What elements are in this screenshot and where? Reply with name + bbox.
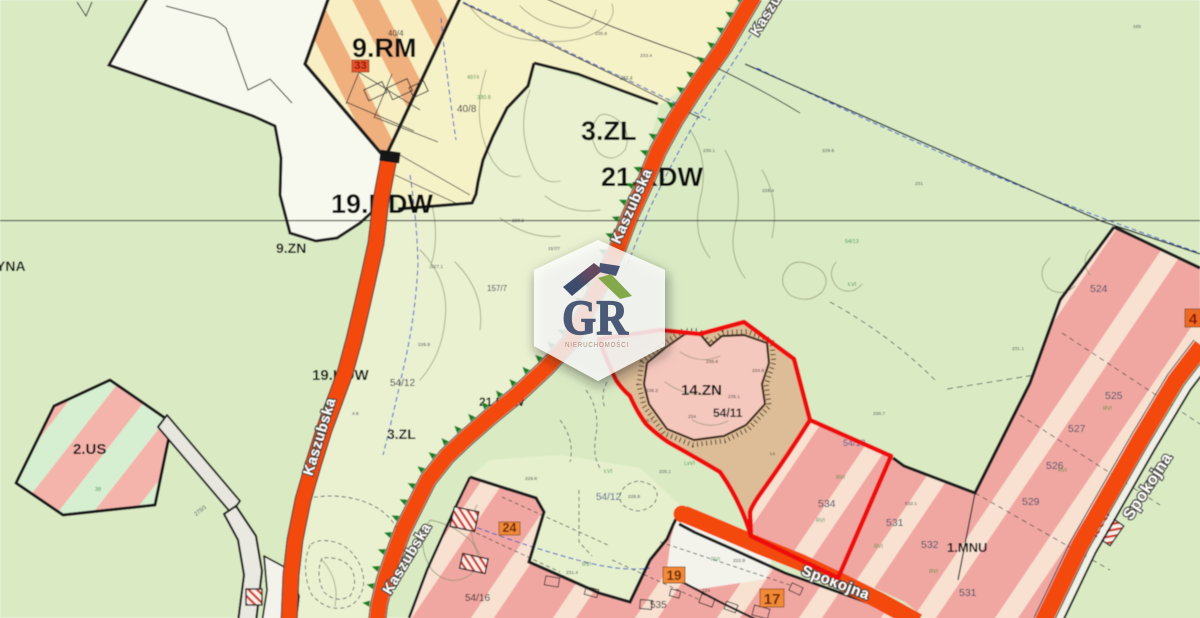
svg-text:157/7: 157/7	[548, 246, 560, 252]
svg-text:229.6: 229.6	[525, 476, 537, 482]
svg-text:228.8: 228.8	[628, 494, 640, 500]
svg-text:235.1: 235.1	[728, 394, 740, 400]
svg-text:222.9: 222.9	[733, 558, 745, 564]
svg-text:531: 531	[959, 587, 977, 599]
svg-text:165: 165	[1133, 24, 1141, 30]
svg-text:54/11: 54/11	[713, 406, 743, 420]
svg-text:527: 527	[1068, 423, 1086, 435]
svg-text:54/16: 54/16	[465, 593, 490, 604]
svg-text:24: 24	[503, 521, 517, 535]
svg-text:19: 19	[666, 568, 681, 583]
svg-text:157/7: 157/7	[487, 284, 508, 293]
svg-text:RVI: RVI	[836, 475, 846, 481]
svg-text:3.ZL: 3.ZL	[387, 426, 416, 442]
svg-text:229.8: 229.8	[822, 148, 834, 154]
svg-text:231.4: 231.4	[566, 570, 578, 576]
svg-text:33: 33	[354, 60, 366, 72]
svg-text:40/4: 40/4	[388, 29, 404, 38]
svg-text:226.8: 226.8	[418, 342, 430, 348]
svg-text:525: 525	[1105, 390, 1123, 402]
svg-text:9.ZN: 9.ZN	[276, 240, 306, 256]
svg-text:236.6: 236.6	[706, 359, 718, 365]
svg-text:40/8: 40/8	[457, 104, 477, 115]
svg-text:233.4: 233.4	[620, 76, 633, 82]
svg-text:YNA: YNA	[0, 258, 26, 274]
svg-text:RVI: RVI	[874, 544, 884, 550]
svg-text:14.ZN: 14.ZN	[681, 382, 722, 399]
svg-text:228.2: 228.2	[512, 218, 524, 224]
svg-text:235.6: 235.6	[595, 31, 607, 37]
svg-text:225.1: 225.1	[659, 469, 671, 475]
svg-text:4.8: 4.8	[352, 411, 359, 417]
svg-text:ŁVI: ŁVI	[604, 469, 613, 475]
svg-text:RVI: RVI	[582, 562, 592, 568]
svg-text:54/12: 54/12	[596, 492, 621, 503]
svg-text:228.4: 228.4	[762, 188, 774, 194]
svg-text:RVI: RVI	[711, 557, 721, 563]
svg-text:RVI: RVI	[929, 569, 939, 575]
svg-text:231: 231	[915, 181, 923, 187]
svg-text:231.1: 231.1	[1012, 346, 1024, 352]
svg-text:532: 532	[921, 539, 939, 551]
svg-text:ŁVI: ŁVI	[848, 282, 857, 288]
svg-text:RVI: RVI	[1058, 468, 1068, 474]
svg-text:532.1: 532.1	[905, 501, 917, 507]
svg-text:NIERUCHOMOŚCI: NIERUCHOMOŚCI	[565, 340, 629, 349]
svg-text:3.ZL: 3.ZL	[581, 116, 637, 146]
svg-text:4974: 4974	[467, 75, 479, 81]
svg-text:230.1: 230.1	[703, 148, 715, 154]
svg-text:9.RM: 9.RM	[352, 33, 417, 63]
svg-text:531: 531	[886, 517, 904, 529]
svg-text:224: 224	[702, 588, 710, 594]
svg-text:236.2: 236.2	[646, 388, 658, 394]
svg-text:233.4: 233.4	[640, 53, 652, 59]
svg-text:534: 534	[818, 498, 836, 510]
svg-text:529: 529	[1022, 496, 1040, 508]
svg-text:234: 234	[688, 414, 696, 420]
svg-text:LsVI: LsVI	[684, 461, 695, 467]
svg-text:535: 535	[650, 600, 667, 611]
svg-text:230.7: 230.7	[873, 411, 885, 417]
svg-text:330.8: 330.8	[477, 95, 491, 101]
svg-text:227.1: 227.1	[431, 264, 443, 270]
svg-text:4: 4	[1189, 311, 1198, 328]
svg-text:2.US: 2.US	[73, 441, 106, 458]
svg-text:234.8: 234.8	[752, 368, 764, 374]
svg-text:1.MNU: 1.MNU	[947, 540, 987, 555]
svg-text:524: 524	[1090, 283, 1108, 295]
svg-text:54/12: 54/12	[390, 378, 415, 389]
svg-text:Ls: Ls	[770, 451, 776, 457]
svg-text:RVI: RVI	[1103, 406, 1113, 412]
svg-text:17: 17	[764, 591, 781, 608]
svg-text:39: 39	[95, 487, 101, 493]
svg-text:RVI: RVI	[816, 518, 826, 524]
svg-text:GR: GR	[562, 289, 629, 345]
svg-text:54/13: 54/13	[845, 239, 859, 245]
